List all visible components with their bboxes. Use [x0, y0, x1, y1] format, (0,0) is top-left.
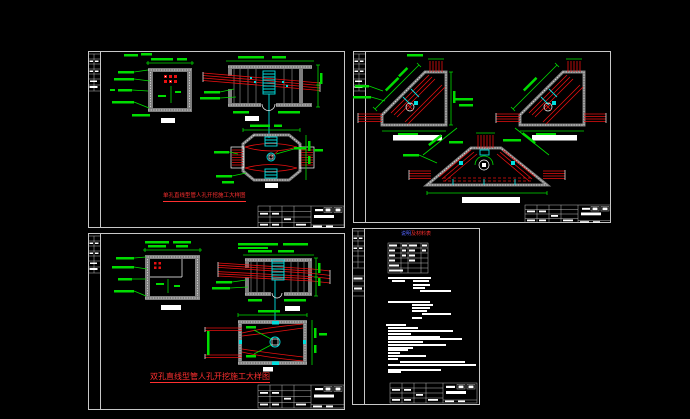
note-text-line [412, 304, 433, 306]
rect-manhole-plan [205, 310, 327, 372]
note-text-line [422, 313, 451, 315]
note-text-line [388, 358, 398, 360]
note-text-line [388, 341, 423, 343]
note-text-line [388, 277, 431, 279]
note-text-line [388, 333, 411, 335]
note-text-line [388, 352, 400, 354]
note-text-line [412, 307, 430, 309]
junction-manhole-plan [403, 98, 565, 203]
sheet-3: 双孔直线型管人孔开挖施工大样图 [88, 233, 345, 410]
sheet3-linework [88, 233, 345, 410]
note-text-line [386, 324, 406, 326]
note-text-line [400, 361, 465, 363]
note-text-line [413, 287, 425, 289]
sheet3-title-block [258, 385, 344, 408]
corner-manhole-plan-right [496, 59, 606, 141]
note-text-line [388, 371, 401, 373]
note-text-line [413, 284, 430, 286]
square-manhole-plan [112, 53, 194, 123]
corner-manhole-plan-left [353, 54, 456, 141]
note-text-line [388, 349, 408, 351]
sheet2-title-block [525, 205, 611, 223]
sheet1-caption: 单孔直线型管人孔开挖施工大样图 [163, 194, 246, 202]
cad-canvas: { "colors": { "bg": "#000000", "frame": … [0, 0, 690, 419]
sheet1-title-block [258, 206, 344, 228]
note-text-line [388, 344, 446, 346]
sheet-4: 说明及材料表 [352, 228, 480, 405]
note-text-line [388, 355, 426, 357]
note-text-line [420, 290, 451, 292]
note-text-line [388, 301, 430, 303]
note-text-line [388, 327, 418, 329]
sheet-1: 单孔直线型管人孔开挖施工大样图 [88, 51, 345, 228]
sheet-2 [353, 51, 611, 223]
manhole-section-2 [212, 243, 330, 320]
octagon-manhole-plan [214, 125, 323, 189]
note-text-line [412, 310, 427, 312]
note-text-line [392, 280, 405, 282]
sheet2-linework [353, 51, 611, 223]
note-text-line [388, 364, 476, 366]
note-text-line [413, 280, 429, 282]
sheet3-caption: 双孔直线型管人孔开挖施工大样图 [150, 373, 270, 383]
notes-lines [352, 228, 480, 405]
note-text-line [388, 330, 453, 332]
note-text-line [412, 317, 422, 319]
square-manhole-plan-2 [112, 241, 202, 310]
note-text-line [388, 338, 462, 340]
